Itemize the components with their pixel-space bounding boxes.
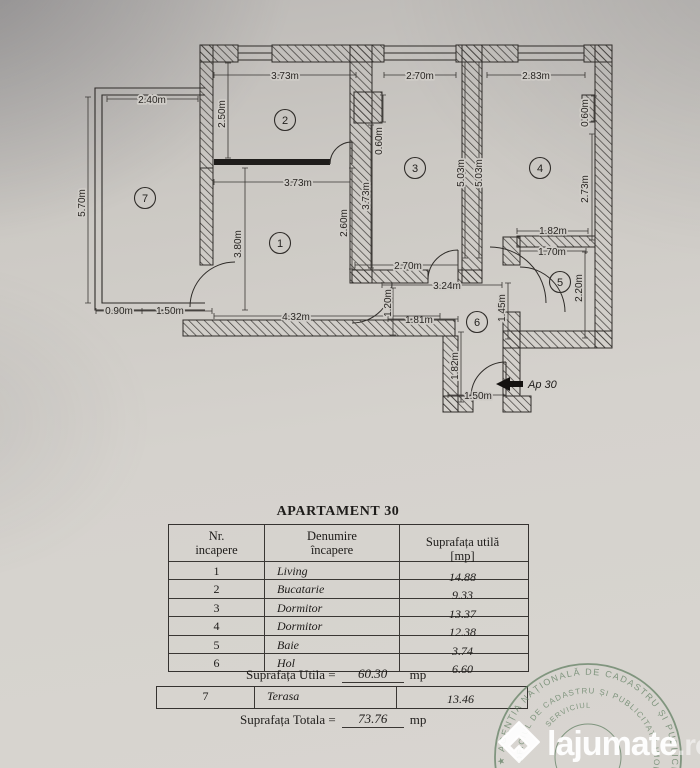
dim-label: 3.80m (233, 230, 244, 258)
dim-label: 5.03m (456, 159, 467, 187)
dim-label: 1.82m (450, 352, 461, 380)
dim-label: 2.70m (406, 71, 434, 82)
row-name: Dormitor (264, 617, 399, 634)
dim-label: 2.50m (217, 100, 228, 128)
dim-label: 3.24m (433, 281, 461, 292)
table-row: 4 Dormitor 12.38 (169, 616, 528, 634)
row-nr: 3 (169, 599, 264, 616)
dim-label: 2.73m (580, 175, 591, 203)
room-number-3: 3 (405, 158, 426, 179)
row-area: 12.38 (399, 617, 525, 634)
totala-unit: mp (410, 712, 427, 728)
lajumate-logo: lajumate.ro (498, 720, 700, 768)
row-name: Baie (264, 636, 399, 653)
totala-label: Suprafața Totala = (240, 712, 336, 728)
header-denumire: Denumireîncapere (264, 525, 399, 561)
logo-tld-text: .ro (677, 729, 700, 762)
area-table: Nr.incapere Denumireîncapere Suprafața u… (168, 524, 529, 672)
dim-label: 1.81m (405, 315, 433, 326)
svg-text:5: 5 (557, 277, 563, 289)
dim-label: 1.70m (538, 247, 566, 258)
terasa-table: 7 Terasa 13.46 (156, 686, 528, 709)
row-nr: 1 (169, 562, 264, 579)
svg-text:3: 3 (412, 163, 418, 175)
header-nr: Nr.incapere (169, 525, 264, 561)
svg-text:4: 4 (537, 163, 543, 175)
suprafata-totala-line: Suprafața Totala = 73.76 mp (240, 711, 426, 728)
dim-label: 1.20m (383, 289, 394, 317)
row-nr: 2 (169, 580, 264, 597)
dim-label: 1.82m (539, 226, 567, 237)
svg-text:1: 1 (277, 238, 283, 250)
dim-label: 3.73m (361, 182, 372, 210)
row-area: 9.33 (399, 580, 525, 597)
table-header-row: Nr.incapere Denumireîncapere Suprafața u… (169, 525, 528, 561)
logo-brand-text: lajumate (547, 725, 677, 763)
dim-label: 2.20m (574, 274, 585, 302)
dim-label: 1.50m (464, 391, 492, 402)
header-suprafata: Suprafața utilă[mp] (399, 525, 525, 561)
row-nr: 7 (157, 687, 254, 708)
suprafata-utila-line: Suprafața Utila = 60.30 mp (246, 666, 426, 683)
dim-label: 5.70m (77, 189, 88, 217)
dim-label: 4.32m (282, 312, 310, 323)
row-name: Living (264, 562, 399, 579)
floor-plan-drawing: 2.40m 3.73m 2.70m 2.83m 3.73m 2.70m 3.24… (0, 0, 700, 470)
svg-text:2: 2 (282, 115, 288, 127)
table-row: 2 Bucatarie 9.33 (169, 579, 528, 597)
table-row: 5 Baie 3.74 (169, 635, 528, 653)
row-name: Bucatarie (264, 580, 399, 597)
room-number-5: 5 (550, 272, 571, 293)
dim-label: 0.60m (580, 99, 591, 127)
row-area: 13.37 (399, 599, 525, 616)
dim-label: 2.83m (522, 71, 550, 82)
room-number-6: 6 (467, 312, 488, 333)
svg-text:6: 6 (474, 317, 480, 329)
dim-label: 5.03m (474, 159, 485, 187)
photographed-floor-plan-page: { "plan": { "apartment_label": "Ap 30", … (0, 0, 700, 768)
dim-label: 0.90m (105, 306, 133, 317)
table-title: APARTAMENT 30 (158, 504, 518, 520)
row-area: 14.88 (399, 562, 525, 579)
dim-label: 3.73m (284, 178, 312, 189)
room-number-2: 2 (275, 110, 296, 131)
row-nr: 5 (169, 636, 264, 653)
dim-label: 2.40m (138, 95, 166, 106)
room-number-1: 1 (270, 233, 291, 254)
table-row: 3 Dormitor 13.37 (169, 598, 528, 616)
row-area: 3.74 (399, 636, 525, 653)
row-name: Dormitor (264, 599, 399, 616)
room-number-7: 7 (135, 188, 156, 209)
dim-label: 0.60m (374, 127, 385, 155)
totala-value: 73.76 (342, 711, 404, 728)
svg-text:7: 7 (142, 193, 148, 205)
row-nr: 4 (169, 617, 264, 634)
apartment-entry-label: Ap 30 (527, 379, 558, 391)
table-row: 1 Living 14.88 (169, 561, 528, 579)
solid-partition (214, 159, 330, 165)
logo-diamond-icon (498, 721, 540, 767)
row-name: Terasa (254, 687, 396, 708)
dim-label: 2.60m (339, 209, 350, 237)
dim-label: 2.70m (394, 261, 422, 272)
dim-label: 3.73m (271, 71, 299, 82)
dim-label: 1.50m (156, 306, 184, 317)
room-number-4: 4 (530, 158, 551, 179)
terrace-walls (95, 88, 205, 310)
dim-label: 1.45m (497, 294, 508, 322)
row-area: 13.46 (396, 687, 524, 708)
table-row: 7 Terasa 13.46 (157, 687, 527, 708)
utila-value: 60.30 (342, 666, 404, 683)
utila-unit: mp (410, 667, 427, 683)
utila-label: Suprafața Utila = (246, 667, 336, 683)
